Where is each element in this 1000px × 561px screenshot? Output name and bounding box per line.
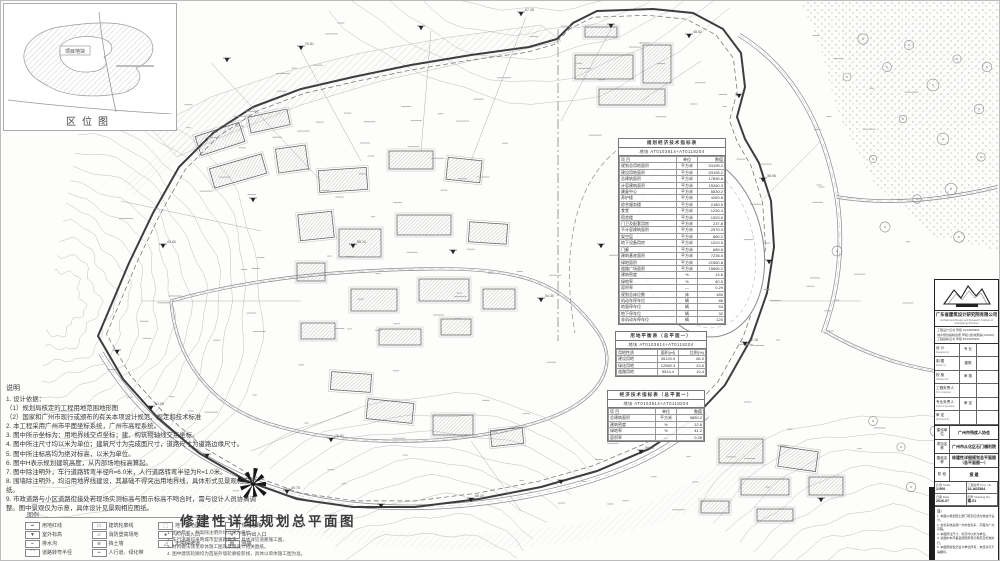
title-note-line: 3. 材料做法详见单体施工图及景观设计相关图纸。	[167, 544, 383, 551]
note-line: 8. 围墙除注明外，均沿用地界线建设，其基础不得突出用地界线，具体形式见景观相应…	[6, 477, 262, 495]
note-line: 6. 图中H表示规划建筑高度，从内部场地标高算起。	[6, 459, 262, 468]
indicator-table: 规划经济技术指标表 地块 AT0103614+AT0118204 项 目单位数值…	[618, 138, 726, 325]
inset-site-label: 项目地块	[65, 48, 85, 55]
project-row: 项目名称广州市从化区石门福利院	[935, 440, 998, 454]
staff-mid: 建筑	[960, 357, 977, 370]
legend-label: 用地红线	[42, 522, 62, 529]
note-line: 3. 图中所示坐标为：用地界线交点坐标；建、构筑物轴线交点坐标。	[6, 431, 262, 440]
meta-grid: 比例 Scale1:500工程编号 Proj. No.16-A02584日期 D…	[935, 482, 998, 507]
company-name: 广东省建筑设计研究院有限公司	[935, 311, 998, 319]
staff-mid	[960, 384, 977, 397]
staff-label: 制 图Drawn by	[935, 357, 960, 370]
legend-symbol-icon: ⌒	[25, 549, 40, 557]
titleblock-note-line: 5. 本图纸版权归设计单位所有，未经许可不得翻印。	[937, 545, 996, 554]
sub-indicator-table: 经济技术指标表（总平面一） 地块 AT0103614+AT0118204 项 目…	[607, 390, 705, 442]
legend-item: ━用地红线	[25, 521, 88, 530]
note-line: 5. 图中所注标高均为绝对标高，以米为单位。	[6, 450, 262, 459]
indicator-table-subtitle: 地块 AT0103614+AT0118204	[619, 148, 725, 156]
legend-item: ▱消防登高场地	[92, 530, 155, 539]
land-balance-subtitle: 地块 AT0103614+AT0118204	[616, 341, 706, 349]
svg-text:72.16: 72.16	[749, 338, 758, 342]
table-cell: 5514.4	[658, 369, 679, 375]
staff-row: 专业负责人Chief of Specialty审 定	[935, 398, 998, 412]
staff-signature-space	[977, 411, 998, 424]
staff-label: 专业负责人Chief of Specialty	[935, 398, 960, 411]
staff-row: 制 图Drawn by建筑	[935, 357, 998, 371]
note-line: （2）国家和广州市现行或颁布的有关本项设计规范、规定和技术标准	[6, 413, 262, 422]
table-cell: 道路用地	[617, 369, 658, 375]
staff-mid	[960, 411, 977, 424]
legend-label: 排水沟	[42, 540, 57, 547]
design-notes: 说明 1. 设计依据：（1）规划局核定的工程用地范围地形图（2）国家和广州市现行…	[6, 384, 262, 513]
svg-text:49.75: 49.75	[291, 486, 300, 490]
notes-body: 1. 设计依据：（1）规划局核定的工程用地范围地形图（2）国家和广州市现行或颁布…	[6, 395, 262, 513]
project-row-value: 修建性详细规划总平面图（总平面图一）	[950, 454, 998, 467]
certificate-lines: 工程设计证书 甲级 A144005961城乡规划编制资质 甲级 [建]城规编(1…	[935, 327, 998, 344]
inset-road-1	[8, 100, 172, 114]
legend-item: ▼室外标高	[25, 530, 88, 539]
legend-item: ≋挡土墙	[92, 539, 155, 548]
project-row: 图纸名称修建性详细规划总平面图（总平面图一）	[935, 454, 998, 468]
legend-symbol-icon: ▼	[25, 531, 40, 539]
mountain-logo-icon	[942, 282, 992, 308]
legend-label: 消防登高场地	[109, 531, 139, 538]
staff-label: 审 定Approved by	[935, 411, 960, 424]
svg-text:66.20: 66.20	[475, 494, 484, 498]
land-balance-title: 用地平衡表（总平面一）	[616, 332, 706, 341]
binding-edge-bar	[929, 487, 934, 561]
land-balance-table: 用地平衡表（总平面一） 地块 AT0103614+AT0118204 用地性质面…	[615, 331, 707, 377]
svg-text:67.35: 67.35	[525, 8, 534, 12]
drawing-sheet: 54.3070.8167.3545.6238.9572.1658.4066.20…	[0, 0, 1000, 561]
table-cell: 容积率	[609, 434, 656, 440]
svg-text:54.30: 54.30	[545, 294, 554, 298]
table-row: 容积率—0.26	[609, 434, 704, 440]
staff-label: 设 计Designed by	[935, 344, 960, 357]
note-line: 2. 本工程采用广州市平面坐标系统，广州市高程系统。	[6, 422, 262, 431]
legend-label: 建筑轮廓线	[109, 522, 134, 529]
svg-text:55.12: 55.12	[357, 240, 366, 244]
title-block: 广东省建筑设计研究院有限公司 Architectural Design and …	[934, 279, 999, 561]
meta-cell: 比例 Scale1:500	[935, 482, 967, 494]
company-name-en: Architectural Design and Research Instit…	[935, 319, 998, 326]
staff-signature-space	[977, 344, 998, 357]
project-row-label: 图纸名称	[935, 454, 950, 467]
project-row: 建设单位广州市残疾人协会	[935, 426, 998, 440]
titleblock-note-line: 1. 本图以规划国土部门核定红线为准进行设计。	[937, 514, 996, 523]
legend-item: ┉排水沟	[25, 539, 88, 548]
meta-cell: 日期 Date2016.07	[935, 494, 967, 506]
note-line: 7. 图中除注明外，车行道路转弯半径R=6.0米，人行道路转弯半径为R=1.0米…	[6, 468, 262, 477]
project-row-value: 广州市残疾人协会	[950, 426, 998, 439]
staff-row: 设 计Designed by专 业	[935, 344, 998, 358]
title-note-line: 2. 车行道路均采用城市型道路做法，具体详见道路施工图。	[167, 537, 383, 544]
staff-mid: 专 业	[960, 344, 977, 357]
table-row: 用地性质面积(㎡)比例(%)	[617, 350, 706, 356]
project-row-label: 项目名称	[935, 440, 950, 453]
svg-text:38.95: 38.95	[767, 174, 776, 178]
titleblock-notes: 注： 1. 本图以规划国土部门核定红线为准进行设计。2. 坐标系统采用广州市坐标…	[935, 507, 998, 557]
staff-row: 校 核Checked by审 核	[935, 371, 998, 385]
legend-item: ⌒道路转弯半径	[25, 548, 88, 557]
legend-symbol-icon: ┅	[92, 549, 107, 557]
note-line: （1）规划局核定的工程用地范围地形图	[6, 404, 262, 413]
note-line: 4. 图中所注尺寸均以米为单位；建筑尺寸为完成面尺寸，道路尺寸为道路边缘尺寸。	[6, 440, 262, 449]
certificate-line: 工程勘察证书 甲级 B144005961	[937, 337, 996, 342]
legend-label: 人行道、绿化带	[109, 549, 144, 556]
table-cell: —	[656, 434, 677, 440]
project-row-value: 广州市从化区石门福利院	[950, 440, 998, 453]
project-rows: 建设单位广州市残疾人协会项目名称广州市从化区石门福利院图纸名称修建性详细规划总平…	[935, 426, 998, 468]
legend-title: 图例	[27, 510, 39, 519]
legend-item: ┅人行道、绿化带	[92, 548, 155, 557]
legend-label: 道路转弯半径	[42, 549, 72, 556]
table-row: 非机动车停车位辆120	[620, 317, 725, 323]
project-row-label: 建设单位	[935, 426, 950, 439]
staff-row: 工程负责人Proj. Engineer	[935, 384, 998, 398]
location-map-inset: 项目地块 区位图	[3, 3, 177, 131]
sub-indicator-subtitle: 地块 AT0103614+AT0118204	[608, 400, 704, 408]
titleblock-notes-title: 注：	[937, 509, 944, 513]
staff-signature-space	[977, 357, 998, 370]
note-line: 1. 设计依据：	[6, 395, 262, 404]
table-row: 道路用地5514.410.4	[617, 369, 706, 375]
sub-indicator-title: 经济技术指标表（总平面一）	[608, 391, 704, 400]
legend-symbol-icon: ┉	[25, 540, 40, 548]
legend-item: ▭建筑轮廓线	[92, 521, 155, 530]
titleblock-note-line: 2. 坐标系统采用广州市坐标系，高程为广州高程。	[937, 523, 996, 532]
staff-signature-rows: 设 计Designed by专 业制 图Drawn by建筑校 核Checked…	[935, 344, 998, 426]
meta-cell: 图号 Drawing No.规-01	[967, 494, 999, 506]
svg-text:70.81: 70.81	[335, 434, 344, 438]
meta-cell: 工程编号 Proj. No.16-A02584	[967, 482, 999, 494]
indicator-table-title: 规划经济技术指标表	[619, 139, 725, 148]
staff-mid: 审 定	[960, 398, 977, 411]
svg-text:45.62: 45.62	[693, 30, 702, 34]
svg-text:70.81: 70.81	[305, 42, 314, 46]
legend-label: 室外标高	[42, 531, 62, 538]
legend-symbol-icon: ━	[25, 522, 40, 530]
staff-signature-space	[977, 371, 998, 384]
stage-value: 报 建	[950, 468, 998, 481]
staff-label: 校 核Checked by	[935, 371, 960, 384]
table-cell: 120	[698, 317, 725, 323]
legend-label: 挡土墙	[109, 540, 124, 547]
stage-row: 阶 段 报 建	[935, 468, 998, 482]
title-note-line: 4. 图中建筑轮廓均为首层外墙轮廓投影线，具体以单体施工图为准。	[167, 551, 383, 558]
staff-mid: 审 核	[960, 371, 977, 384]
legend-symbol-icon: ▱	[92, 531, 107, 539]
legend-symbol-icon: ≋	[92, 540, 107, 548]
table-cell: 辆	[677, 317, 698, 323]
main-title-block: 修建性详细规划总平面图 1. 图中尺寸、标高除注明外均以米为单位。2. 车行道路…	[153, 510, 383, 558]
notes-title: 说明	[6, 384, 262, 394]
titleblock-note-line: 4. 总图中未尽事宜按国家现行规范及标准执行。	[937, 536, 996, 545]
location-map-caption: 区位图	[4, 113, 176, 128]
staff-label: 工程负责人Proj. Engineer	[935, 384, 960, 397]
drawing-title-notes: 1. 图中尺寸、标高除注明外均以米为单位。2. 车行道路均采用城市型道路做法，具…	[153, 530, 383, 558]
table-cell: 10.4	[679, 369, 706, 375]
drawing-title: 修建性详细规划总平面图	[153, 510, 383, 530]
legend-symbol-icon: ▭	[92, 522, 107, 530]
table-cell: 0.26	[677, 434, 704, 440]
svg-text:43.60: 43.60	[167, 240, 176, 244]
svg-text:58.40: 58.40	[645, 446, 654, 450]
company-logo	[935, 280, 998, 311]
staff-row: 审 定Approved by	[935, 411, 998, 425]
table-cell: 非机动车停车位	[620, 317, 677, 323]
staff-signature-space	[977, 398, 998, 411]
title-note-line: 1. 图中尺寸、标高除注明外均以米为单位。	[167, 530, 383, 537]
stage-label: 阶 段	[935, 468, 950, 481]
staff-signature-space	[977, 384, 998, 397]
